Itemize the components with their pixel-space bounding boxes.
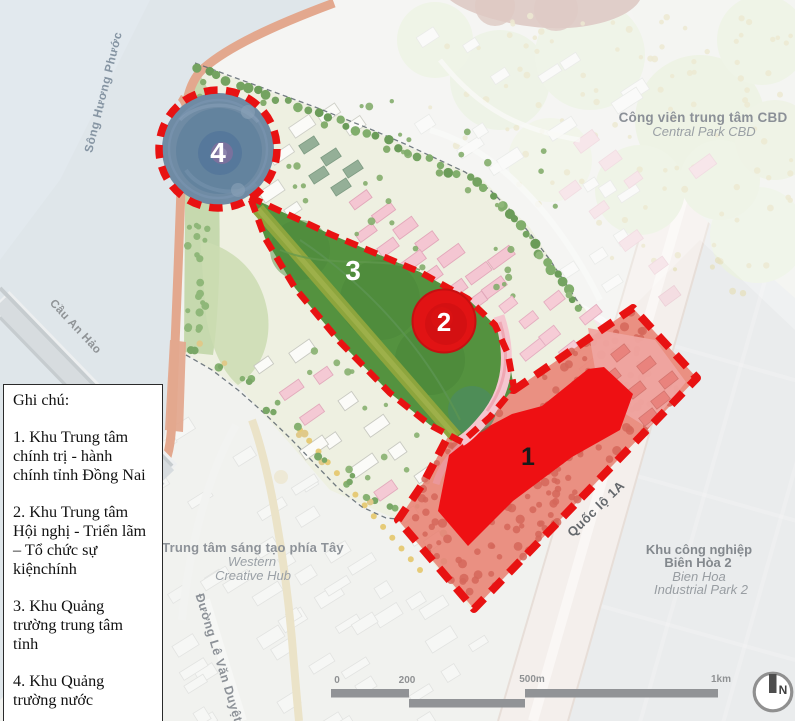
svg-text:2: 2 — [437, 307, 451, 337]
svg-text:1: 1 — [521, 443, 535, 471]
svg-text:200: 200 — [399, 675, 416, 686]
svg-text:1km: 1km — [711, 674, 731, 685]
svg-text:Western: Western — [228, 554, 276, 569]
svg-text:4: 4 — [210, 137, 226, 168]
svg-text:500m: 500m — [519, 674, 545, 685]
svg-text:Công viên trung tâm CBD: Công viên trung tâm CBD — [619, 110, 788, 125]
svg-text:N: N — [779, 683, 788, 697]
svg-text:Central Park CBD: Central Park CBD — [652, 124, 755, 139]
svg-text:Biên Hòa 2: Biên Hòa 2 — [664, 555, 731, 570]
svg-text:0: 0 — [334, 675, 340, 686]
svg-text:Trung tâm sáng tạo phía Tây: Trung tâm sáng tạo phía Tây — [162, 540, 344, 555]
svg-text:Creative Hub: Creative Hub — [215, 568, 291, 583]
svg-text:3: 3 — [345, 255, 361, 286]
svg-text:Industrial Park 2: Industrial Park 2 — [654, 582, 749, 597]
